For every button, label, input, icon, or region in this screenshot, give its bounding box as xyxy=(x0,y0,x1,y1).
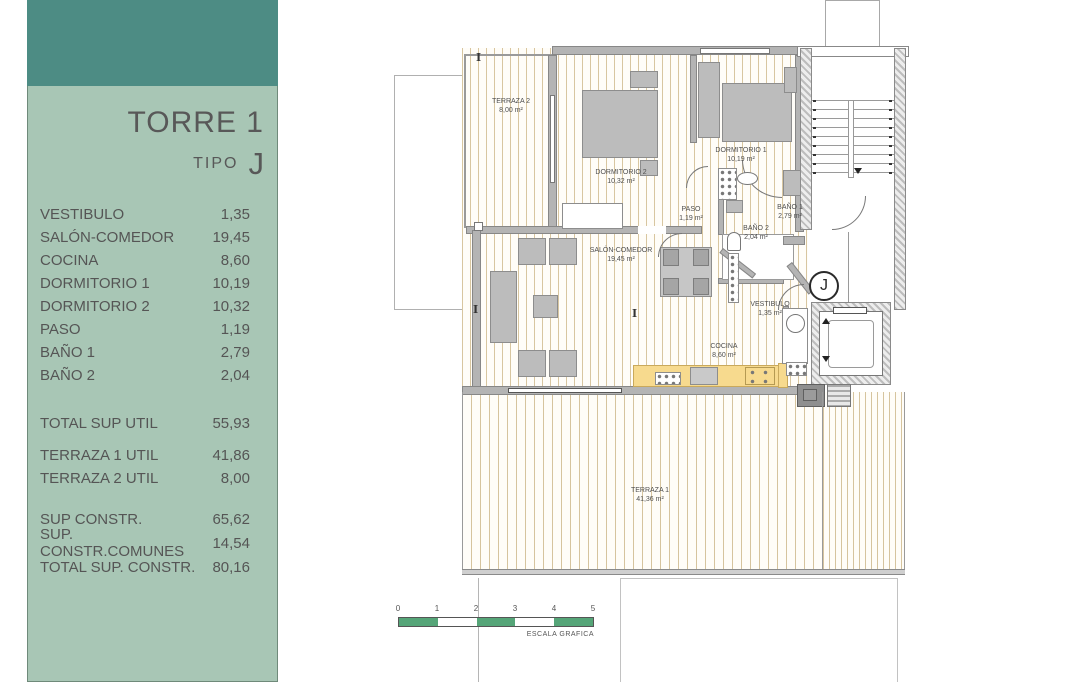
list-item: PASO1,19 xyxy=(40,318,250,341)
tipo-value: J xyxy=(249,146,265,181)
lower-slab-outline xyxy=(620,578,898,682)
scale-tick-0: 0 xyxy=(393,604,403,613)
list-item: SUP. CONSTR.COMUNES14,54 xyxy=(40,531,250,555)
tipo-label: TIPO xyxy=(193,155,238,172)
scale-segment xyxy=(554,618,593,626)
terraza1-left-edge xyxy=(462,392,463,575)
lower-slab-line xyxy=(478,578,479,682)
elevator-cab-inner xyxy=(828,320,874,368)
wall-dorm2-dorm1 xyxy=(690,55,697,143)
ibeam-column-3: I xyxy=(632,308,637,319)
room-label-dormitorio1: DORMITORIO 110,19 m² xyxy=(706,146,776,164)
window-salon xyxy=(508,388,622,393)
terraza1-divider xyxy=(822,392,823,575)
adjacent-balcony-outline xyxy=(394,75,470,310)
door-opening-paso xyxy=(638,226,666,234)
elevator-marker-up xyxy=(822,318,830,324)
window-dormitorio2 xyxy=(550,95,555,183)
room-label-vestibulo: VESTIBULO1,35 m² xyxy=(740,300,800,318)
armchair-4 xyxy=(549,350,577,377)
room-label-terraza2: TERRAZA 28,00 m² xyxy=(476,97,546,115)
room-label-bano1: BAÑO 12,79 m² xyxy=(762,203,818,221)
room-label-cocina: COCINA8,60 m² xyxy=(694,342,754,360)
sofa xyxy=(490,271,517,343)
list-item: SALÓN-COMEDOR19,45 xyxy=(40,226,250,249)
toilet-bano1 xyxy=(737,172,758,185)
stair-dots-left xyxy=(813,100,816,180)
room-areas-list: VESTIBULO1,35 SALÓN-COMEDOR19,45 COCINA8… xyxy=(40,203,250,387)
stair-wall-right xyxy=(894,48,906,310)
wardrobe-recess xyxy=(562,203,623,229)
floorplan-page: TORRE 1 TIPOJ VESTIBULO1,35 SALÓN-COMEDO… xyxy=(0,0,1070,682)
landing-line xyxy=(848,232,849,302)
stair-direction-arrow xyxy=(854,168,862,174)
unit-badge: J xyxy=(809,271,839,301)
scale-segment xyxy=(438,618,477,626)
list-item: VESTIBULO1,35 xyxy=(40,203,250,226)
sink-bano1 xyxy=(783,170,801,196)
list-item: COCINA8,60 xyxy=(40,249,250,272)
dining-chair-4 xyxy=(693,278,709,295)
machinery-inner xyxy=(803,389,817,401)
room-label-dormitorio2: DORMITORIO 210,32 m² xyxy=(586,168,656,186)
vent-grille xyxy=(827,384,851,407)
pillow-dormitorio1 xyxy=(784,67,797,93)
terraza2-left-edge xyxy=(464,55,466,228)
scale-segment xyxy=(477,618,516,626)
scale-tick-2: 2 xyxy=(471,604,481,613)
scale-tick-5: 5 xyxy=(588,604,598,613)
dining-chair-2 xyxy=(693,249,709,266)
roof-outline xyxy=(825,0,880,48)
room-label-paso: PASO1,19 m² xyxy=(666,205,716,223)
room-label-bano2: BAÑO 22,04 m² xyxy=(728,224,784,242)
list-item: DORMITORIO 210,32 xyxy=(40,295,250,318)
window-dormitorio1 xyxy=(700,48,770,54)
list-item: BAÑO 12,79 xyxy=(40,341,250,364)
scale-segment xyxy=(515,618,554,626)
graphic-scale-bar xyxy=(398,617,594,627)
elevator-door xyxy=(833,307,867,314)
shower-bano1 xyxy=(718,168,737,200)
list-item: TOTAL SUP. CONSTR.80,16 xyxy=(40,555,250,579)
sidebar-header-block xyxy=(27,0,278,86)
total-util-row: TOTAL SUP UTIL55,93 xyxy=(40,412,250,435)
kitchen-sink xyxy=(690,367,718,385)
armchair-2 xyxy=(549,238,577,265)
bed-dormitorio2 xyxy=(582,90,658,158)
elevator-marker-down xyxy=(822,356,830,362)
ibeam-column-1: I xyxy=(476,52,481,63)
scale-segment xyxy=(399,618,438,626)
scale-caption: ESCALA GRAFICA xyxy=(494,631,594,638)
terraza1-right-edge xyxy=(904,392,905,575)
ibeam-column-2: I xyxy=(473,304,478,315)
scale-tick-3: 3 xyxy=(510,604,520,613)
dining-chair-3 xyxy=(663,278,679,295)
list-item: BAÑO 22,04 xyxy=(40,364,250,387)
stair-top-window xyxy=(797,46,909,57)
list-item: DORMITORIO 110,19 xyxy=(40,272,250,295)
tipo-row: TIPOJ xyxy=(27,146,264,182)
stair-stringer xyxy=(848,100,854,178)
list-item: TERRAZA 1 UTIL41,86 xyxy=(40,444,250,467)
armchair-1 xyxy=(518,238,546,265)
stair-dots-right xyxy=(889,100,892,180)
armchair-3 xyxy=(518,350,546,377)
pillow-dormitorio2 xyxy=(630,71,658,88)
sink-bano2 xyxy=(726,200,743,213)
column-top xyxy=(474,222,483,231)
terraza-util-rows: TERRAZA 1 UTIL41,86 TERRAZA 2 UTIL8,00 xyxy=(40,444,250,490)
room-label-terraza1: TERRAZA 141,36 m² xyxy=(610,486,690,504)
room-label-salon-comedor: SALÓN-COMEDOR19,45 m² xyxy=(576,246,666,264)
wardrobe-dormitorio1 xyxy=(698,62,720,138)
radiator-column xyxy=(728,253,739,303)
tower-title: TORRE 1 xyxy=(27,106,264,140)
wall-vestibulo-top xyxy=(783,236,805,245)
terraza1-side-strip xyxy=(823,392,905,572)
dish-rack xyxy=(655,372,681,385)
coffee-table xyxy=(533,295,558,318)
hob-dots xyxy=(786,362,807,376)
scale-tick-4: 4 xyxy=(549,604,559,613)
constructed-rows: SUP CONSTR.65,62 SUP. CONSTR.COMUNES14,5… xyxy=(40,507,250,579)
list-item: TERRAZA 2 UTIL8,00 xyxy=(40,467,250,490)
scale-tick-1: 1 xyxy=(432,604,442,613)
bed-dormitorio1 xyxy=(722,83,792,142)
terraza1-parapet xyxy=(462,569,905,575)
cooktop xyxy=(745,367,775,385)
